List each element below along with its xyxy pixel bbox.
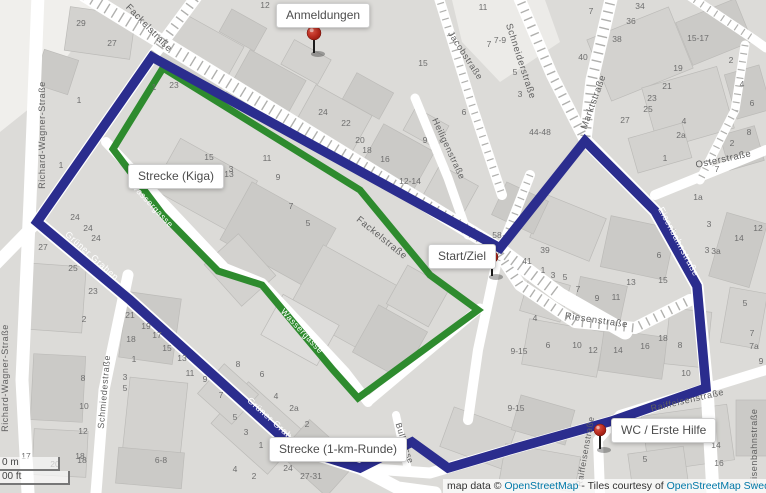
house-number: 3 bbox=[123, 372, 128, 382]
house-number: 10 bbox=[79, 401, 89, 411]
house-number: 1a bbox=[693, 192, 703, 202]
building bbox=[30, 354, 85, 423]
house-number: 21 bbox=[125, 310, 135, 320]
house-number: 40 bbox=[578, 52, 588, 62]
house-number: 3 bbox=[518, 89, 523, 99]
house-number: 5 bbox=[643, 454, 648, 464]
house-number: 44-48 bbox=[529, 127, 551, 137]
house-number: 7 bbox=[219, 390, 224, 400]
house-number: 11 bbox=[612, 292, 621, 302]
openstreetmap-link[interactable]: OpenStreetMap bbox=[504, 480, 578, 492]
house-number: 58 bbox=[492, 230, 502, 240]
house-number: 19 bbox=[673, 63, 683, 73]
house-number: 7 bbox=[576, 284, 581, 294]
scale-control: 0 m 00 ft bbox=[0, 457, 70, 485]
house-number: 8 bbox=[236, 359, 241, 369]
house-number: 7-9 bbox=[494, 35, 507, 45]
house-number: 14 bbox=[734, 233, 744, 243]
attribution-middle: - Tiles courtesy of bbox=[579, 480, 667, 492]
house-number: 13 bbox=[177, 353, 187, 363]
house-number: 12 bbox=[260, 0, 270, 10]
house-number: 16 bbox=[714, 458, 724, 468]
attribution-prefix: map data © bbox=[447, 480, 504, 492]
house-number: 7a bbox=[749, 341, 759, 351]
house-number: 7 bbox=[487, 39, 492, 49]
house-number: 6 bbox=[750, 98, 755, 108]
house-number: 24 bbox=[91, 233, 101, 243]
house-number: 23 bbox=[169, 80, 179, 90]
house-number: 15 bbox=[418, 58, 428, 68]
house-number: 9 bbox=[203, 374, 208, 384]
house-number: 3 bbox=[705, 245, 710, 255]
house-number: 10 bbox=[572, 340, 582, 350]
street-label: Eisenbahnstraße bbox=[749, 408, 759, 485]
house-number: 34 bbox=[635, 1, 645, 11]
house-number: 15 bbox=[658, 275, 668, 285]
house-number: 8 bbox=[678, 340, 683, 350]
house-number: 15-17 bbox=[687, 33, 709, 43]
house-number: 24 bbox=[83, 223, 93, 233]
house-number: 21 bbox=[662, 81, 672, 91]
house-number: 1 bbox=[152, 82, 157, 92]
building bbox=[116, 447, 185, 489]
house-number: 1 bbox=[132, 354, 137, 364]
house-number: 12 bbox=[753, 223, 763, 233]
house-number: 9 bbox=[423, 135, 428, 145]
house-number: 9-15 bbox=[507, 403, 524, 413]
house-number: 27 bbox=[38, 242, 48, 252]
pin-head bbox=[594, 424, 606, 436]
house-number: 4 bbox=[533, 313, 538, 323]
house-number: 3 bbox=[551, 270, 556, 280]
tooltip-wc-erste-hilfe: WC / Erste Hilfe bbox=[611, 418, 716, 443]
scale-metric: 0 m bbox=[0, 457, 60, 471]
house-number: 18 bbox=[658, 333, 668, 343]
house-number: 13 bbox=[626, 277, 636, 287]
house-number: 24 bbox=[283, 463, 293, 473]
house-number: 4 bbox=[740, 79, 745, 89]
house-number: 8 bbox=[747, 127, 752, 137]
house-number: 6 bbox=[657, 250, 662, 260]
map-container[interactable]: FackelstraßeFackelstraßeRichard-Wagner-S… bbox=[0, 0, 766, 493]
house-number: 14 bbox=[613, 345, 623, 355]
house-number: 5 bbox=[233, 412, 238, 422]
house-number: 1 bbox=[259, 440, 264, 450]
pin-highlight bbox=[310, 28, 314, 32]
house-number: 2a bbox=[289, 403, 299, 413]
house-number: 36 bbox=[626, 16, 636, 26]
house-number: 9 bbox=[595, 293, 600, 303]
house-number: 6-8 bbox=[155, 455, 168, 465]
tooltip-strecke-1km-runde: Strecke (1-km-Runde) bbox=[269, 437, 407, 462]
building bbox=[122, 377, 188, 459]
house-number: 23 bbox=[647, 93, 657, 103]
house-number: 1 bbox=[541, 265, 546, 275]
house-number: 9 bbox=[276, 172, 281, 182]
house-number: 38 bbox=[612, 34, 622, 44]
scale-imperial: 00 ft bbox=[0, 471, 70, 485]
house-number: 25 bbox=[68, 263, 78, 273]
attribution-bar: map data © OpenStreetMap - Tiles courtes… bbox=[443, 479, 766, 493]
house-number: 23 bbox=[88, 286, 98, 296]
house-number: 12 bbox=[78, 426, 88, 436]
house-number: 8 bbox=[81, 373, 86, 383]
house-number: 11 bbox=[263, 153, 272, 163]
house-number: 11 bbox=[186, 368, 195, 378]
house-number: 5 bbox=[513, 67, 518, 77]
house-number: 2a bbox=[676, 130, 686, 140]
house-number: 17 bbox=[152, 330, 162, 340]
house-number: 4 bbox=[274, 391, 279, 401]
house-number: 24 bbox=[70, 212, 80, 222]
house-number: 27-31 bbox=[300, 471, 322, 481]
house-number: 7 bbox=[589, 6, 594, 16]
house-number: 39 bbox=[540, 245, 550, 255]
house-number: 15 bbox=[204, 152, 214, 162]
house-number: 7 bbox=[715, 164, 720, 174]
house-number: 3a bbox=[711, 246, 721, 256]
house-number: 12-14 bbox=[399, 176, 421, 186]
openstreetmap-sweden-link[interactable]: OpenStreetMap Sweden bbox=[667, 480, 766, 492]
house-number: 5 bbox=[743, 298, 748, 308]
house-number: 20 bbox=[355, 135, 365, 145]
house-number: 7 bbox=[289, 201, 294, 211]
house-number: 16 bbox=[380, 154, 390, 164]
house-number: 2 bbox=[82, 314, 87, 324]
house-number: 6 bbox=[462, 107, 467, 117]
house-number: 9 bbox=[759, 356, 764, 366]
house-number: 12 bbox=[588, 345, 598, 355]
house-number: 7 bbox=[750, 328, 755, 338]
house-number: 24 bbox=[318, 107, 328, 117]
house-number: 19 bbox=[141, 321, 151, 331]
house-number: 22 bbox=[341, 118, 351, 128]
house-number: 27 bbox=[107, 38, 117, 48]
house-number: 1 bbox=[77, 95, 82, 105]
house-number: 18 bbox=[75, 451, 85, 461]
house-number: 6 bbox=[546, 340, 551, 350]
street-label: Richard-Wagner-Straße bbox=[0, 324, 10, 432]
house-number: 16 bbox=[640, 341, 650, 351]
house-number: 5 bbox=[563, 272, 568, 282]
house-number: 11 bbox=[479, 2, 488, 12]
house-number: 6 bbox=[260, 369, 265, 379]
house-number: 4 bbox=[682, 116, 687, 126]
pin-head bbox=[307, 26, 321, 40]
house-number: 25 bbox=[643, 104, 653, 114]
house-number: 2 bbox=[252, 471, 257, 481]
house-number: 5 bbox=[306, 218, 311, 228]
street-label: Richard-Wagner-Straße bbox=[37, 81, 47, 189]
tooltip-strecke-kiga: Strecke (Kiga) bbox=[128, 164, 224, 189]
house-number: 27 bbox=[620, 115, 630, 125]
building bbox=[598, 329, 667, 379]
house-number: 10 bbox=[681, 368, 691, 378]
house-number: 18 bbox=[362, 145, 372, 155]
house-number: 2 bbox=[729, 55, 734, 65]
pin-highlight bbox=[596, 426, 599, 429]
house-number: 1 bbox=[663, 153, 668, 163]
tooltip-start-ziel: Start/Ziel bbox=[428, 244, 496, 269]
house-number: 29 bbox=[76, 18, 86, 28]
house-number: 41 bbox=[522, 256, 532, 266]
house-number: 5 bbox=[123, 383, 128, 393]
house-number: 3 bbox=[244, 427, 249, 437]
house-number: 9-15 bbox=[510, 346, 527, 356]
house-number: 15 bbox=[162, 343, 172, 353]
house-number: 4 bbox=[233, 464, 238, 474]
house-number: 18 bbox=[126, 334, 136, 344]
house-number: 3 bbox=[707, 219, 712, 229]
house-number: 13 bbox=[224, 169, 234, 179]
tooltip-anmeldungen: Anmeldungen bbox=[276, 3, 370, 28]
house-number: 2 bbox=[730, 138, 735, 148]
house-number: 2 bbox=[305, 419, 310, 429]
house-number: 1 bbox=[59, 160, 64, 170]
